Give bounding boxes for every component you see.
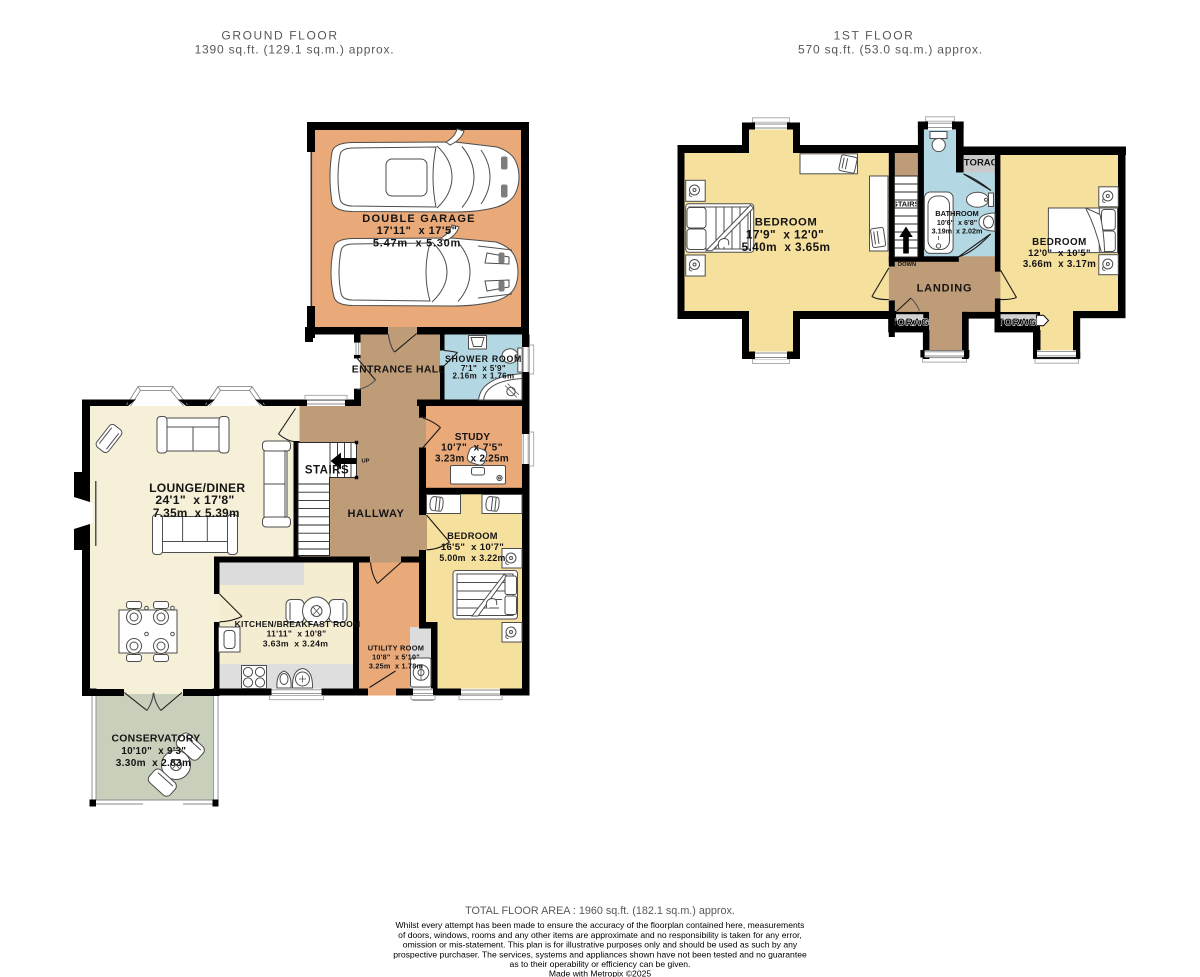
- svg-text:omission or mis-statement. Thi: omission or mis-statement. This plan is …: [403, 940, 798, 950]
- svg-text:12'0" x 10'5": 12'0" x 10'5": [1028, 248, 1091, 259]
- svg-text:BEDROOM: BEDROOM: [1032, 237, 1087, 248]
- svg-text:3.66m x 3.17m: 3.66m x 3.17m: [1023, 259, 1096, 270]
- svg-text:Whilst every attempt has been: Whilst every attempt has been made to en…: [396, 920, 805, 930]
- svg-text:STUDY: STUDY: [455, 432, 491, 443]
- svg-text:2.16m x 1.76m: 2.16m x 1.76m: [452, 372, 514, 381]
- svg-text:570 sq.ft. (53.0 sq.m.) approx: 570 sq.ft. (53.0 sq.m.) approx.: [798, 43, 983, 57]
- svg-text:SHOWER ROOM: SHOWER ROOM: [445, 354, 522, 364]
- svg-text:3.63m x 3.24m: 3.63m x 3.24m: [263, 638, 329, 648]
- svg-text:10'10" x 9'3": 10'10" x 9'3": [121, 746, 186, 757]
- svg-text:5.40m x 3.65m: 5.40m x 3.65m: [742, 240, 831, 254]
- svg-text:HALLWAY: HALLWAY: [348, 508, 405, 520]
- svg-text:BATHROOM: BATHROOM: [935, 209, 979, 218]
- svg-text:1ST FLOOR: 1ST FLOOR: [834, 29, 915, 43]
- svg-text:16'5" x 10'7": 16'5" x 10'7": [441, 542, 504, 553]
- svg-text:DOWN: DOWN: [898, 262, 916, 268]
- svg-text:of doors, windows, rooms and a: of doors, windows, rooms and any other i…: [398, 930, 802, 940]
- svg-text:TOTAL FLOOR AREA : 1960 sq.ft.: TOTAL FLOOR AREA : 1960 sq.ft. (182.1 sq…: [465, 905, 735, 917]
- svg-text:10'7" x 7'5": 10'7" x 7'5": [441, 443, 503, 454]
- svg-text:3.30m x 2.83m: 3.30m x 2.83m: [116, 758, 191, 769]
- svg-text:CONSERVATORY: CONSERVATORY: [111, 733, 200, 744]
- svg-text:BEDROOM: BEDROOM: [447, 531, 498, 541]
- svg-text:5.47m x 5.30m: 5.47m x 5.30m: [373, 237, 461, 249]
- svg-text:5.00m x 3.22m: 5.00m x 3.22m: [439, 553, 505, 563]
- svg-text:10'8" x 5'10": 10'8" x 5'10": [372, 653, 420, 662]
- svg-text:24'1" x 17'8": 24'1" x 17'8": [155, 493, 234, 507]
- svg-text:7.35m x 5.39m: 7.35m x 5.39m: [153, 507, 240, 520]
- svg-text:LANDING: LANDING: [917, 283, 973, 295]
- svg-text:11'11" x 10'8": 11'11" x 10'8": [267, 628, 327, 638]
- svg-text:DOUBLE GARAGE: DOUBLE GARAGE: [362, 213, 475, 225]
- svg-text:STAIRS: STAIRS: [305, 465, 349, 477]
- svg-text:Made with Metropix ©2025: Made with Metropix ©2025: [549, 969, 652, 977]
- svg-text:1390 sq.ft. (129.1 sq.m.) appr: 1390 sq.ft. (129.1 sq.m.) approx.: [195, 43, 395, 57]
- svg-text:STAIRS: STAIRS: [893, 200, 920, 209]
- svg-text:UTILITY ROOM: UTILITY ROOM: [368, 644, 424, 653]
- svg-text:3.23m x 2.25m: 3.23m x 2.25m: [435, 454, 509, 465]
- svg-text:prospective purchaser. The ser: prospective purchaser. The services, sys…: [393, 949, 807, 959]
- svg-text:UP: UP: [361, 459, 369, 465]
- svg-text:ENTRANCE HALL: ENTRANCE HALL: [352, 364, 446, 375]
- svg-text:3.19m x 2.02m: 3.19m x 2.02m: [932, 227, 983, 236]
- svg-text:3.25m x 1.78m: 3.25m x 1.78m: [369, 662, 423, 671]
- svg-text:GROUND FLOOR: GROUND FLOOR: [221, 29, 338, 43]
- svg-text:17'11" x 17'5": 17'11" x 17'5": [377, 225, 458, 237]
